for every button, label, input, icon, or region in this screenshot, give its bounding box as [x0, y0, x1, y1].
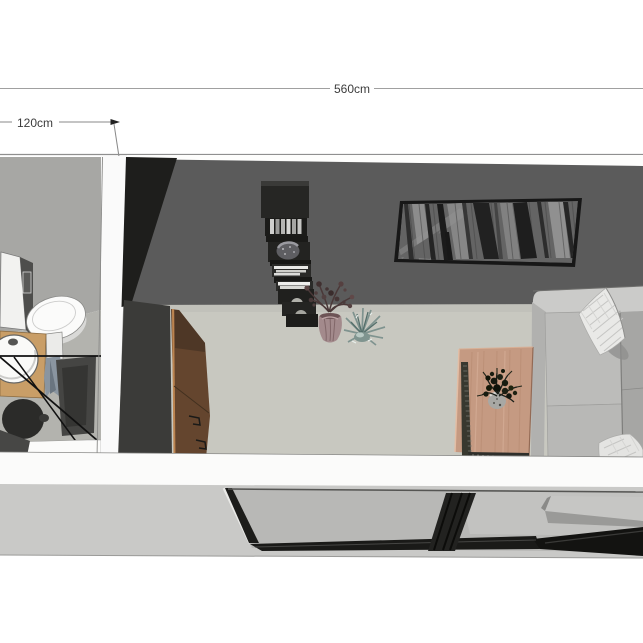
svg-text:120cm: 120cm — [17, 116, 53, 130]
svg-text:560cm: 560cm — [334, 82, 370, 96]
